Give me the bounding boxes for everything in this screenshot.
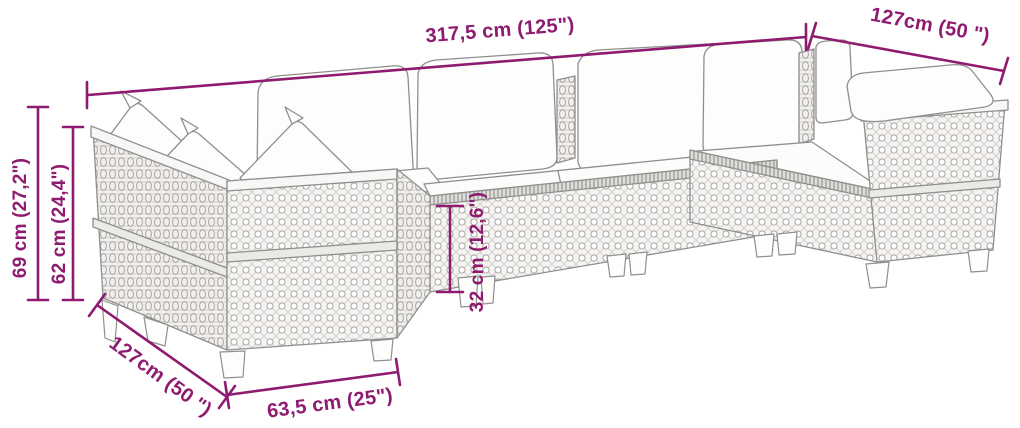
- wicker-panel: [397, 169, 430, 338]
- dim-label-seat-base-height: 32 cm (12,6"): [467, 192, 489, 312]
- dim-label-back-height: 69 cm (27,2"): [10, 158, 32, 278]
- leg: [220, 351, 245, 378]
- wicker-back-post: [557, 76, 575, 163]
- leg: [371, 339, 393, 361]
- leg: [754, 234, 774, 257]
- back-cushion: [417, 53, 557, 180]
- diagram-canvas: 317,5 cm (125") 127cm (50 ") 69 cm (27,2…: [0, 0, 1020, 428]
- wicker-back-post: [799, 49, 814, 144]
- leg: [629, 252, 647, 275]
- dim-label-arm-height: 62 cm (24,4"): [49, 164, 71, 284]
- leg: [607, 254, 626, 277]
- back-cushion: [703, 40, 805, 155]
- sofa-line-art: [91, 40, 1008, 378]
- leg: [968, 249, 989, 272]
- corner-pillow: [816, 40, 853, 123]
- leg: [866, 262, 889, 288]
- leg: [777, 232, 797, 255]
